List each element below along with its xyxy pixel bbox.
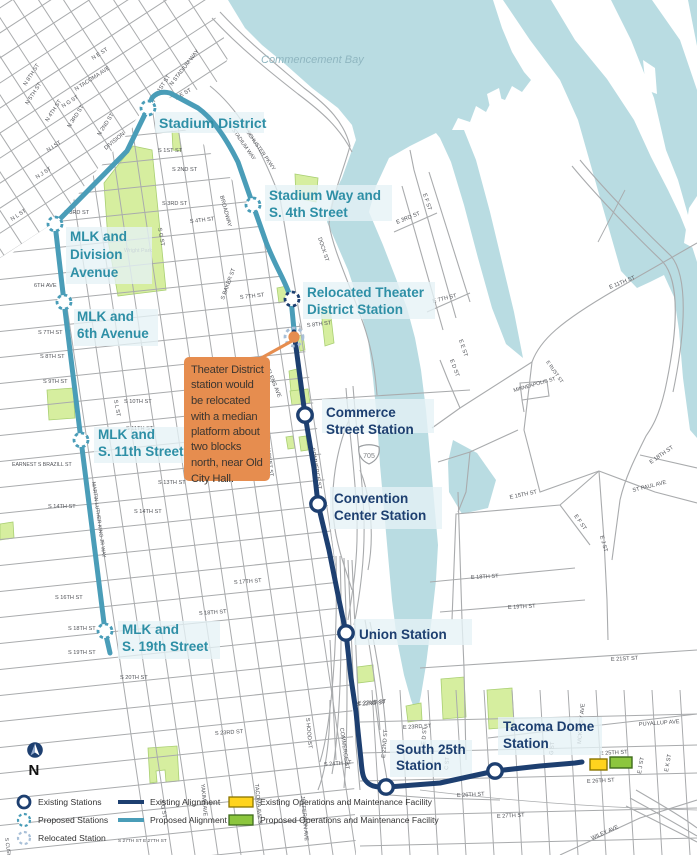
svg-text:S 14TH ST: S 14TH ST	[48, 504, 76, 510]
svg-text:Relocated Station: Relocated Station	[38, 833, 106, 843]
svg-text:S 2ND ST: S 2ND ST	[172, 167, 198, 173]
svg-text:Division: Division	[70, 247, 123, 262]
svg-text:Street Station: Street Station	[326, 422, 414, 437]
svg-text:Stadium Way and: Stadium Way and	[269, 188, 381, 203]
svg-text:MLK and: MLK and	[77, 309, 134, 324]
svg-text:Proposed Alignment: Proposed Alignment	[150, 815, 228, 825]
svg-text:Stadium District: Stadium District	[159, 115, 267, 131]
svg-text:S 9TH ST: S 9TH ST	[43, 379, 68, 385]
svg-text:City Hall.: City Hall.	[191, 473, 234, 485]
svg-text:Commerce: Commerce	[326, 405, 396, 420]
svg-text:S 20TH ST: S 20TH ST	[120, 675, 148, 681]
svg-text:Tacoma Dome: Tacoma Dome	[503, 719, 595, 734]
svg-text:Existing Operations and Mainte: Existing Operations and Maintenance Faci…	[260, 797, 433, 807]
svg-text:S 7TH ST: S 7TH ST	[38, 330, 63, 336]
svg-text:S 19TH ST: S 19TH ST	[68, 650, 96, 656]
svg-text:6th Avenue: 6th Avenue	[77, 326, 149, 341]
svg-text:Union Station: Union Station	[359, 627, 447, 642]
svg-text:Existing Alignment: Existing Alignment	[150, 797, 221, 807]
svg-text:S. 4th Street: S. 4th Street	[269, 205, 348, 220]
svg-text:Proposed Operations and Mainte: Proposed Operations and Maintenance Faci…	[260, 815, 439, 825]
svg-text:Station: Station	[396, 758, 442, 773]
svg-text:S 8TH ST: S 8TH ST	[40, 354, 65, 360]
svg-text:District Station: District Station	[307, 302, 403, 317]
svg-text:S 16TH ST: S 16TH ST	[55, 595, 83, 601]
svg-text:Theater District: Theater District	[191, 364, 265, 376]
svg-text:Avenue: Avenue	[70, 265, 119, 280]
svg-text:S 27TH ST E 27TH ST: S 27TH ST E 27TH ST	[118, 838, 167, 844]
svg-text:platform about: platform about	[191, 426, 261, 438]
svg-text:S 14TH ST: S 14TH ST	[134, 509, 162, 515]
svg-text:S 3RD ST: S 3RD ST	[162, 201, 188, 207]
svg-text:N: N	[29, 762, 40, 779]
svg-text:S. 11th Street: S. 11th Street	[98, 444, 184, 459]
svg-text:be relocated: be relocated	[191, 395, 250, 407]
svg-text:S 18TH ST: S 18TH ST	[68, 626, 96, 632]
svg-text:S 1ST ST: S 1ST ST	[158, 148, 183, 154]
svg-text:EARNEST S BRAZILL ST: EARNEST S BRAZILL ST	[12, 462, 73, 468]
svg-text:two blocks: two blocks	[191, 441, 242, 453]
svg-text:Center Station: Center Station	[334, 508, 426, 523]
svg-text:South 25th: South 25th	[396, 742, 466, 757]
svg-text:S. 19th Street: S. 19th Street	[122, 639, 209, 654]
svg-text:Convention: Convention	[334, 491, 408, 506]
svg-text:S 13TH ST: S 13TH ST	[158, 480, 186, 486]
svg-text:S 10TH ST: S 10TH ST	[124, 399, 152, 405]
svg-text:north, near Old: north, near Old	[191, 457, 263, 469]
svg-text:Existing Stations: Existing Stations	[38, 797, 102, 807]
svg-text:6TH AVE: 6TH AVE	[34, 283, 57, 289]
svg-text:Commencement Bay: Commencement Bay	[261, 54, 365, 66]
svg-text:MLK and: MLK and	[122, 622, 179, 637]
svg-text:705: 705	[363, 453, 375, 460]
svg-text:MLK and: MLK and	[98, 427, 155, 442]
svg-text:Relocated Theater: Relocated Theater	[307, 285, 425, 300]
svg-text:with a median: with a median	[190, 411, 257, 423]
svg-text:Proposed Stations: Proposed Stations	[38, 815, 108, 825]
svg-text:MLK and: MLK and	[70, 229, 127, 244]
svg-text:Station: Station	[503, 736, 549, 751]
svg-text:station would: station would	[191, 379, 254, 391]
